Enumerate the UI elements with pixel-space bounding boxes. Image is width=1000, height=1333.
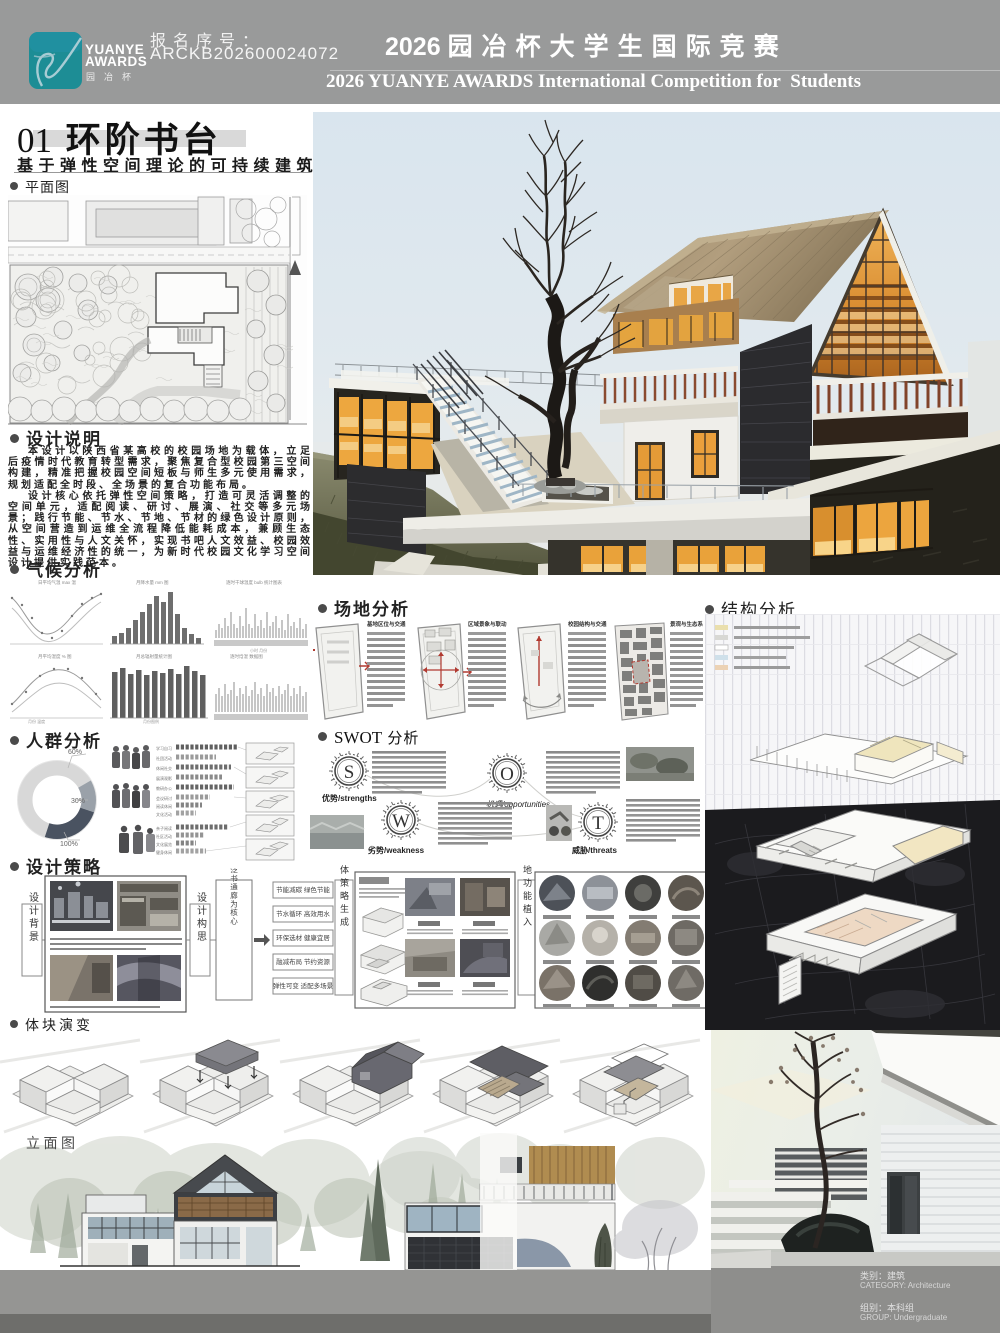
svg-text:学习自习: 学习自习 — [156, 745, 172, 751]
svg-text:月份图例: 月份图例 — [143, 718, 159, 724]
svg-text:O: O — [500, 764, 514, 785]
svg-text:U型泛书通廊为核心: U型泛书通廊为核心 — [229, 868, 238, 925]
svg-text:阅读休闲: 阅读休闲 — [156, 803, 172, 809]
svg-text:景观与生态系统: 景观与生态系统 — [669, 620, 703, 628]
svg-text:劣势/weakness: 劣势/weakness — [367, 845, 425, 855]
svg-text:社区活动: 社区活动 — [156, 833, 172, 839]
svg-text:文化活动: 文化活动 — [156, 811, 172, 817]
svg-text:30%: 30% — [71, 798, 85, 805]
svg-text:会议研讨: 会议研讨 — [156, 795, 172, 801]
svg-text:日平均气温 max 温: 日平均气温 max 温 — [38, 579, 77, 586]
svg-text:校园结构与交通: 校园结构与交通 — [568, 620, 607, 628]
svg-text:小时 月份: 小时 月份 — [250, 647, 267, 653]
svg-text:展演观影: 展演观影 — [156, 775, 172, 781]
svg-text:基地区位与交通: 基地区位与交通 — [366, 620, 406, 628]
svg-text:月降水量 mm 图: 月降水量 mm 图 — [136, 579, 169, 586]
svg-text:月平均湿度 % 图: 月平均湿度 % 图 — [38, 653, 72, 660]
svg-text:逐时焓湿 数据图: 逐时焓湿 数据图 — [230, 653, 263, 660]
svg-text:节水循环 高效用水: 节水循环 高效用水 — [276, 909, 330, 918]
svg-text:设计背景: 设计背景 — [27, 892, 39, 944]
svg-text:区域景象与联动: 区域景象与联动 — [468, 620, 507, 628]
svg-text:60%: 60% — [68, 749, 82, 756]
svg-text:亲子阅读: 亲子阅读 — [156, 825, 172, 831]
svg-text:场地功能植入: 场地功能植入 — [522, 865, 532, 930]
svg-text:环保选材 健康宜居: 环保选材 健康宜居 — [276, 933, 330, 942]
svg-text:具体策略生成: 具体策略生成 — [339, 865, 349, 930]
svg-text:文化展览: 文化展览 — [156, 841, 172, 847]
svg-text:健身休闲: 健身休闲 — [156, 849, 172, 855]
svg-text:威胁/threats: 威胁/threats — [572, 845, 617, 855]
svg-text:月份 温度: 月份 温度 — [28, 718, 45, 724]
svg-text:融减布局 节约资源: 融减布局 节约资源 — [276, 957, 330, 966]
svg-text:设计构思: 设计构思 — [195, 892, 207, 944]
svg-text:优势/strengths: 优势/strengths — [322, 793, 377, 803]
svg-text:节能减碳 绿色节能: 节能减碳 绿色节能 — [276, 885, 330, 894]
svg-text:逐时干球温度 bulb 统计图表: 逐时干球温度 bulb 统计图表 — [226, 579, 283, 586]
svg-text:弹性可变 适配多场景: 弹性可变 适配多场景 — [273, 981, 334, 990]
svg-text:教研办公: 教研办公 — [156, 785, 172, 791]
svg-text:月总辐射量统计图: 月总辐射量统计图 — [136, 653, 172, 660]
svg-text:S: S — [344, 762, 355, 783]
svg-text:100%: 100% — [60, 841, 78, 848]
svg-text:社团活动: 社团活动 — [156, 755, 172, 761]
svg-text:T: T — [592, 813, 604, 834]
svg-text:W: W — [392, 811, 410, 832]
svg-text:休闲社交: 休闲社交 — [156, 765, 172, 771]
